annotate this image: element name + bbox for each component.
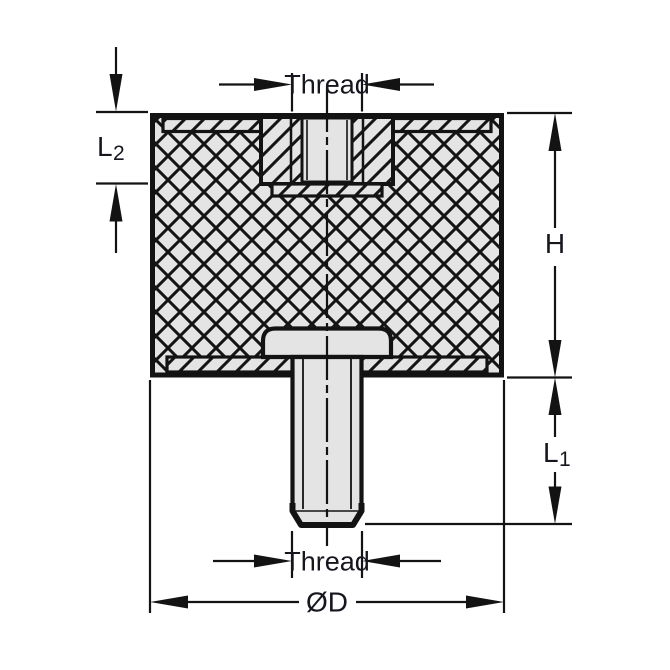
label-h: H: [545, 228, 565, 259]
label-l1: L: [543, 437, 559, 468]
label-l2-subscript: 2: [113, 142, 125, 165]
bottom-plate-left: [167, 357, 293, 372]
dim-l1: [365, 378, 572, 525]
bobbin-mount-cross-section: Thread L 2 H L 1 Thread ØD: [0, 0, 670, 670]
top-plate-left: [163, 119, 261, 132]
label-thread-top: Thread: [284, 70, 370, 100]
bottom-plate-right: [362, 357, 488, 372]
label-diameter: ØD: [306, 587, 348, 618]
label-l1-subscript: 1: [559, 448, 571, 471]
label-thread-bottom: Thread: [284, 547, 370, 577]
top-plate-right: [393, 119, 491, 132]
technical-drawing-canvas: Thread L 2 H L 1 Thread ØD: [0, 0, 670, 670]
label-l2: L: [97, 131, 113, 162]
